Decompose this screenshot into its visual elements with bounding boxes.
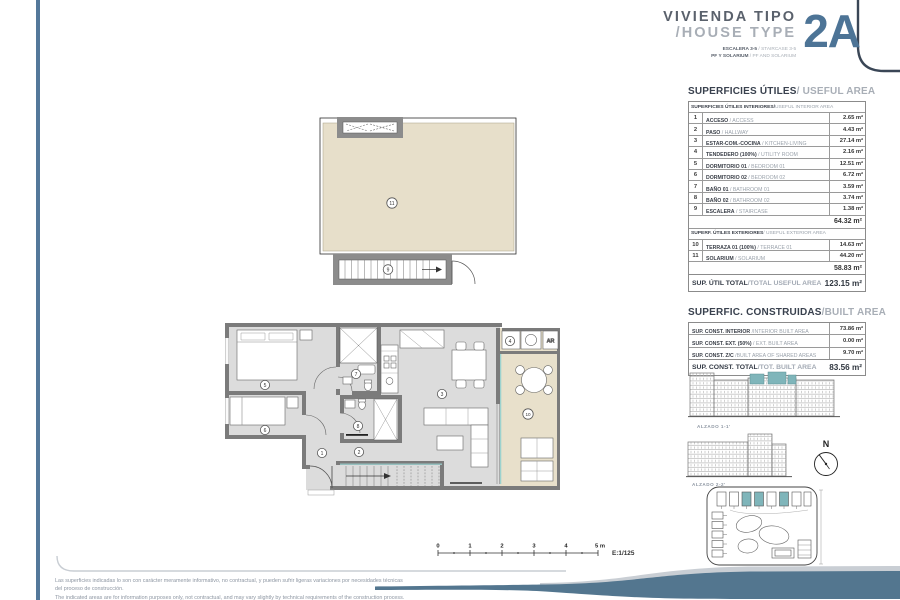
header-titles: VIVIENDA TIPO /HOUSE TYPE ESCALERA 3-5 /… <box>663 10 796 60</box>
useful-title-es: SUPERFICIES ÚTILES <box>688 86 797 97</box>
area-tables: SUPERFICIES ÚTILES / USEFUL AREA SUPERFI… <box>688 86 866 376</box>
disclaimer-es-line1: Las superficies indicadas lo son con car… <box>55 577 535 585</box>
built-area-title: SUPERFIC. CONSTRUIDAS /BUILT AREA <box>688 307 866 318</box>
main-floor-plan: AR 1 2 3 4 5 6 7 8 10 <box>212 318 564 518</box>
svg-text:2: 2 <box>500 544 503 550</box>
title-en: /HOUSE TYPE <box>663 26 796 42</box>
elevation-1-drawing <box>688 368 840 422</box>
ar-label: AR <box>547 339 555 345</box>
svg-text:8: 8 <box>357 424 360 430</box>
svg-text:11: 11 <box>389 201 394 207</box>
coffee-table <box>437 436 463 450</box>
svg-text:3: 3 <box>532 544 536 550</box>
svg-text:5: 5 <box>264 383 267 389</box>
svg-text:0: 0 <box>436 544 439 550</box>
svg-text:1: 1 <box>321 451 324 457</box>
solarium-plan: 9 11 <box>310 94 522 294</box>
roof-bulkhead <box>337 117 403 138</box>
table-row: 11SOLARIUM / SOLARIUM44.20 m² <box>689 250 865 261</box>
subtitle1-en: / STAIRCASE 3-5 <box>757 47 796 52</box>
door-arc <box>452 261 475 284</box>
highlighted-unit <box>768 372 786 384</box>
highlighted-building <box>780 492 789 506</box>
solarium-staircase: 9 <box>333 254 475 285</box>
svg-text:5 m: 5 m <box>595 544 605 550</box>
house-type-code: 2A <box>803 10 860 52</box>
room-number-11: 11 <box>387 198 397 208</box>
built-title-en: /BUILT AREA <box>822 307 886 318</box>
svg-text:4: 4 <box>564 544 568 550</box>
subtitle2-en: / PF AND SOLARIUM <box>748 54 796 59</box>
useful-title-en: / USEFUL AREA <box>797 86 876 97</box>
site-dimension-line <box>819 490 823 564</box>
useful-total-value: 123.15 m² <box>825 279 862 288</box>
highlighted-building <box>742 492 751 506</box>
svg-text:3: 3 <box>441 392 444 398</box>
plan-sheet: VIVIENDA TIPO /HOUSE TYPE ESCALERA 3-5 /… <box>0 0 900 600</box>
built-title-es: SUPERFIC. CONSTRUIDAS <box>688 307 822 318</box>
table-row: 9ESCALERA / STAIRCASE1.38 m² <box>689 203 865 214</box>
highlighted-building <box>755 492 764 506</box>
subtitle1-es: ESCALERA 3-5 <box>723 47 757 52</box>
washing-machine-icon <box>525 334 536 345</box>
svg-text:10: 10 <box>525 412 531 417</box>
header-subtitles: ESCALERA 3-5 / STAIRCASE 3-5 PF Y SOLARI… <box>663 46 796 60</box>
svg-text:2: 2 <box>358 450 361 456</box>
svg-text:6: 6 <box>264 428 267 434</box>
left-accent-bar <box>36 0 40 600</box>
svg-text:1: 1 <box>468 544 472 550</box>
wardrobe <box>340 328 377 363</box>
useful-area-table: SUPERFICIES ÚTILES INTERIORES/ USEFUL IN… <box>688 101 866 292</box>
subtitle2-es: PF Y SOLARIUM <box>711 54 748 59</box>
highlighted-unit <box>750 374 764 384</box>
towel-bar <box>346 434 368 436</box>
table-row: SUP. CONST. Z/C /BUILT AREA OF SHARED AR… <box>689 347 865 359</box>
highlighted-unit <box>788 375 796 384</box>
disclaimer-es-line2: del proceso de construcción. <box>55 585 535 593</box>
disclaimer-en: The indicated areas are for information … <box>55 594 535 600</box>
north-compass-icon: N <box>810 436 842 480</box>
svg-text:9: 9 <box>387 267 390 273</box>
title-es: VIVIENDA TIPO <box>663 10 796 26</box>
useful-area-title: SUPERFICIES ÚTILES / USEFUL AREA <box>688 86 866 97</box>
header: VIVIENDA TIPO /HOUSE TYPE ESCALERA 3-5 /… <box>648 10 860 60</box>
svg-text:7: 7 <box>355 372 358 378</box>
svg-text:4: 4 <box>509 339 512 345</box>
useful-total-row: SUP. ÚTIL TOTAL/TOTAL USEFUL AREA 123.15… <box>689 274 865 291</box>
disclaimer: Las superficies indicadas lo son con car… <box>55 577 535 600</box>
svg-text:N: N <box>823 439 830 449</box>
elevation-2-drawing <box>686 428 792 482</box>
solarium-deck <box>323 123 514 251</box>
